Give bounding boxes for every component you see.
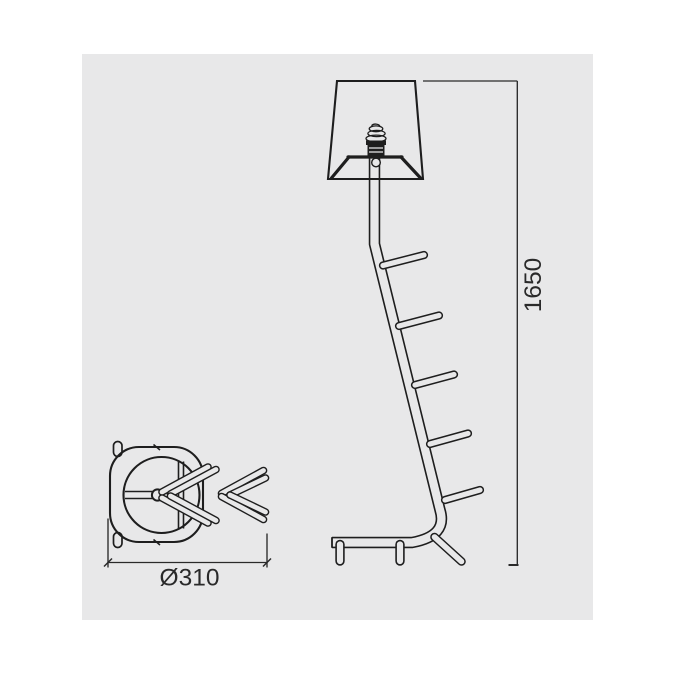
cfl-bulb — [366, 124, 386, 142]
height-dimension: 1650 — [423, 81, 547, 565]
hook-pegs-top — [162, 467, 266, 523]
pole-top-lines — [179, 462, 184, 529]
technical-drawing: 1650 — [82, 54, 593, 620]
drawing-canvas: 1650 — [82, 54, 593, 620]
product-dimension-page: { "colors": { "page_background": "#fffff… — [0, 0, 676, 676]
diameter-dimension: Ø310 — [104, 519, 271, 592]
height-dimension-label: 1650 — [520, 258, 547, 313]
lamp-side-view: 1650 — [328, 81, 547, 565]
socket-ring — [372, 158, 381, 167]
lamp-top-view: Ø310 — [104, 442, 271, 592]
diameter-dimension-label: Ø310 — [160, 565, 220, 592]
lamp-pole — [332, 158, 441, 548]
